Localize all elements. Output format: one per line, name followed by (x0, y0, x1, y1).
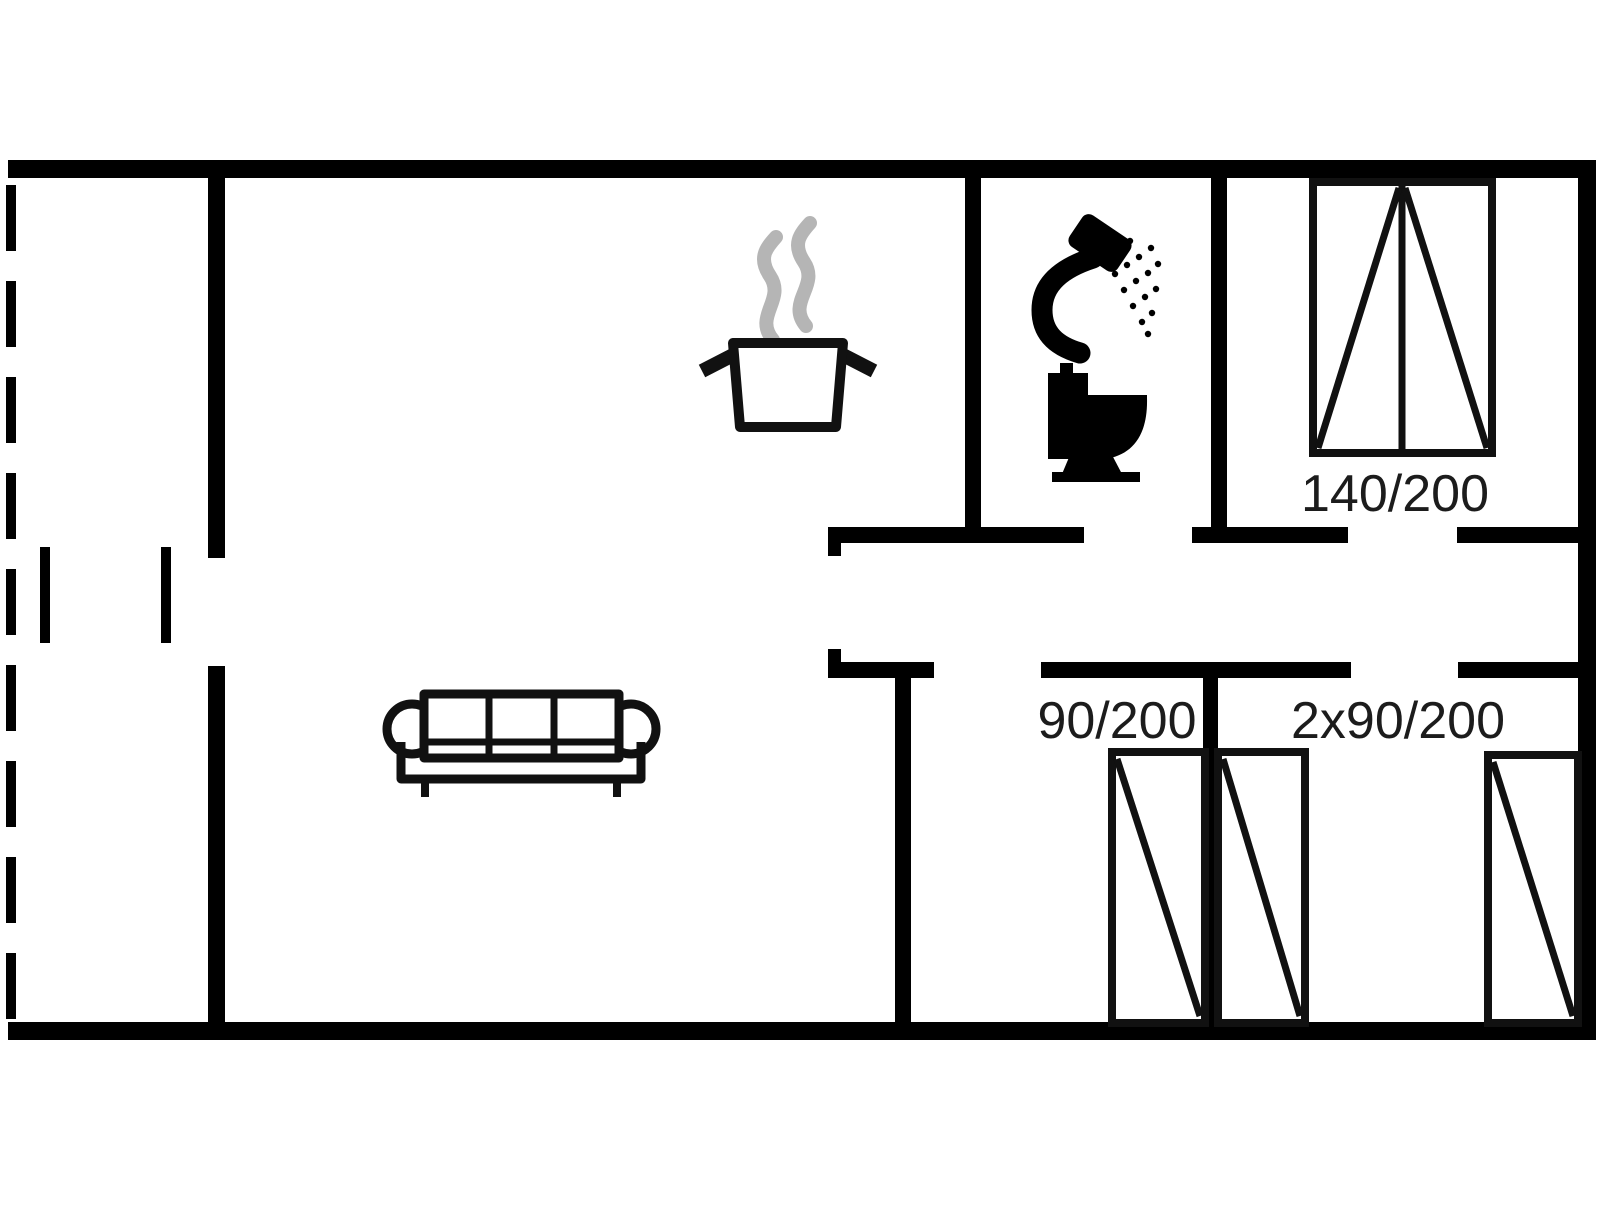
wall-corridor-upper-3 (1457, 527, 1596, 543)
label-bed-double: 140/200 (1301, 465, 1489, 523)
door-jamb-tick-lower (828, 649, 841, 662)
wall-house-left-lower (208, 666, 225, 1024)
wall-living-bedroom (895, 662, 911, 1022)
wall-bathroom-bedroom (1211, 175, 1227, 543)
wall-bottom (8, 1022, 1593, 1040)
label-bed-single: 90/200 (1037, 692, 1196, 750)
terrace-door-marks (40, 547, 171, 643)
wall-house-left-upper (208, 178, 225, 558)
cooking-pot-icon (702, 223, 874, 427)
floorplan-drawing: 140/200 90/200 2x90/200 (0, 0, 1606, 1205)
wall-corridor-upper-1 (828, 527, 1084, 543)
door-jamb-tick-upper (828, 543, 841, 556)
shower-handle (1042, 258, 1093, 353)
wall-top (8, 160, 1593, 178)
pot-body (733, 343, 843, 427)
label-bed-twin: 2x90/200 (1291, 692, 1505, 750)
toilet-icon (1048, 363, 1147, 482)
wall-corridor-upper-2 (1192, 527, 1348, 543)
sofa-icon (387, 694, 656, 797)
sofa-cushions (424, 694, 619, 758)
toilet-base-plate (1052, 472, 1140, 482)
wall-corridor-lower-2 (1041, 662, 1351, 678)
toilet-bowl (1086, 373, 1147, 459)
single-bed-90x200 (1112, 752, 1205, 1023)
wall-kitchen-bathroom (965, 175, 981, 543)
toilet-tank (1048, 373, 1088, 459)
terrace-door-mark-right (161, 547, 171, 643)
wall-corridor-lower-3 (1458, 662, 1596, 678)
terrace-door-mark-left (40, 547, 50, 643)
twin-beds-2x90x200 (1218, 752, 1578, 1023)
floorplan-page: 140/200 90/200 2x90/200 (0, 0, 1606, 1205)
steam-icon (764, 223, 810, 340)
steam-wisp-left (764, 237, 776, 340)
wall-corridor-lower-1 (828, 662, 934, 678)
steam-wisp-right (798, 223, 810, 326)
toilet-pedestal (1062, 455, 1122, 474)
double-bed-140x200 (1313, 182, 1492, 453)
shower-icon (1042, 211, 1161, 353)
